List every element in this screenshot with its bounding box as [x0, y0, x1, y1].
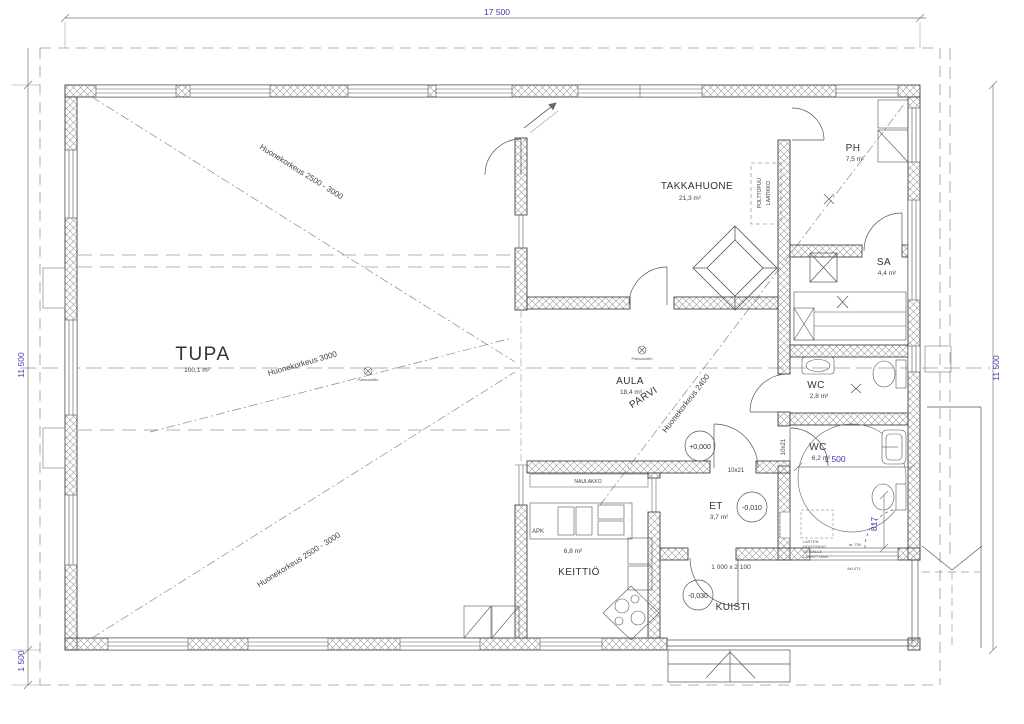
label-window-code: 8x14T1 — [847, 566, 861, 571]
sauna-shower-icon — [837, 296, 848, 308]
room-label-sa: SA — [877, 257, 891, 268]
door-et-aula — [714, 424, 758, 468]
label-firewood-2: LAATIKKO — [766, 181, 772, 205]
room-area-ph: 7,5 m² — [846, 156, 865, 163]
level-et: -0,010 — [742, 505, 762, 512]
room-area-keittio: 6,8 m² — [564, 548, 583, 555]
dim-817: 817 — [869, 517, 879, 531]
room-area-wc-large: 6,2 m² — [812, 455, 831, 462]
room-label-ph: PH — [846, 143, 861, 154]
ph-closets — [878, 100, 908, 162]
level-kuisti: -0,030 — [688, 593, 708, 600]
roof-eaves-outline — [40, 48, 940, 685]
module-grid-lines — [20, 48, 990, 555]
tupa-closets — [464, 606, 519, 638]
note-height-upper: Huonekorkeus 2500 - 3000 — [258, 142, 345, 201]
window-bottom-2 — [248, 638, 328, 650]
level-aula: +0,000 — [689, 444, 711, 451]
window-top-1 — [96, 85, 176, 97]
wc-small-basin — [802, 357, 834, 374]
window-left-1 — [65, 150, 77, 218]
label-dishwasher: APK — [532, 529, 544, 535]
room-label-tupa: TUPA — [175, 344, 230, 365]
window-top-ph — [836, 85, 898, 97]
door-takkahuone-aula — [629, 267, 667, 305]
dim-top: 17 500 — [484, 7, 510, 17]
room-label-keittio: KEITTIÖ — [558, 566, 600, 578]
entrance-steps — [668, 650, 790, 682]
window-bottom-keittio — [540, 638, 602, 650]
smoke-detector-icon-tupa — [364, 367, 372, 375]
wc-small-fan-icon — [851, 384, 861, 393]
smoke-detector-icon-aula — [638, 346, 646, 354]
room-area-takkahuone: 21,3 m² — [679, 195, 702, 202]
label-changing-table-4: LASKETTAVA — [803, 554, 828, 559]
note-height-aula: Huonekorkeus 2400 — [660, 372, 712, 434]
label-smoke-detector-aula: Palovaroitin — [632, 356, 653, 361]
ph-shower-icon — [824, 194, 834, 204]
room-label-et: ET — [709, 501, 723, 512]
window-bottom-1 — [108, 638, 188, 650]
window-top-3 — [348, 85, 428, 97]
window-right-sa — [908, 200, 920, 300]
label-smoke-detector-tupa: Palovaroitin — [358, 377, 379, 382]
dim-left: 11 500 — [16, 352, 26, 378]
label-door-kuisti: 1 000 x 2 100 — [711, 564, 751, 571]
room-area-tupa: 100,1 m² — [184, 367, 210, 374]
window-bottom-3 — [400, 638, 480, 650]
door-ph — [792, 108, 824, 140]
room-label-kuisti: KUISTI — [716, 602, 751, 613]
room-area-wc-small: 2,8 m² — [810, 393, 829, 400]
sauna-stove — [794, 308, 814, 340]
et-wall-box — [780, 512, 790, 538]
floor-plan-page: 17 500 11 500 11 500 1 500 1 500 817 TUP… — [0, 0, 1024, 724]
window-right-wc — [908, 346, 920, 372]
dim-bottom-left: 1 500 — [16, 650, 26, 672]
window-left-2 — [65, 320, 77, 415]
door-wc-small — [750, 374, 788, 412]
dim-right: 11 500 — [991, 355, 1001, 381]
changing-table-dashed — [801, 510, 833, 538]
window-top-2 — [190, 85, 270, 97]
label-coat-rack: NAULAKKO — [574, 479, 601, 485]
room-area-et: 3,7 m² — [710, 514, 729, 521]
window-left-3 — [65, 495, 77, 565]
room-area-sa: 4,4 m² — [878, 270, 897, 277]
room-label-takkahuone: TAKKAHUONE — [661, 181, 733, 192]
label-firewood-1: POLTTOPUU — [757, 178, 763, 208]
window-top-4 — [436, 85, 512, 97]
label-ar750: ar. 750 — [849, 542, 862, 547]
floor-plan-drawing: 17 500 11 500 11 500 1 500 1 500 817 TUP… — [0, 0, 1024, 724]
wc-small-toilet — [873, 360, 906, 388]
door-sa — [864, 213, 902, 251]
note-height-mid: Huonekorkeus 3000 — [267, 349, 339, 378]
note-height-lower: Huonekorkeus 2500 - 3000 — [255, 530, 342, 589]
label-door-wc-large: 10x21 — [781, 438, 787, 455]
parvi-ladder-arrow — [524, 103, 558, 133]
label-door-et: 10x21 — [728, 468, 745, 474]
room-label-wc-large: WC — [809, 442, 826, 453]
wc-large-basin — [882, 430, 906, 464]
window-top-takkahuone — [578, 85, 702, 97]
window-right-ph — [908, 108, 920, 162]
room-label-aula: AULA — [616, 376, 644, 387]
wc-large-toilet — [872, 484, 906, 510]
room-label-wc-small: WC — [807, 380, 824, 391]
